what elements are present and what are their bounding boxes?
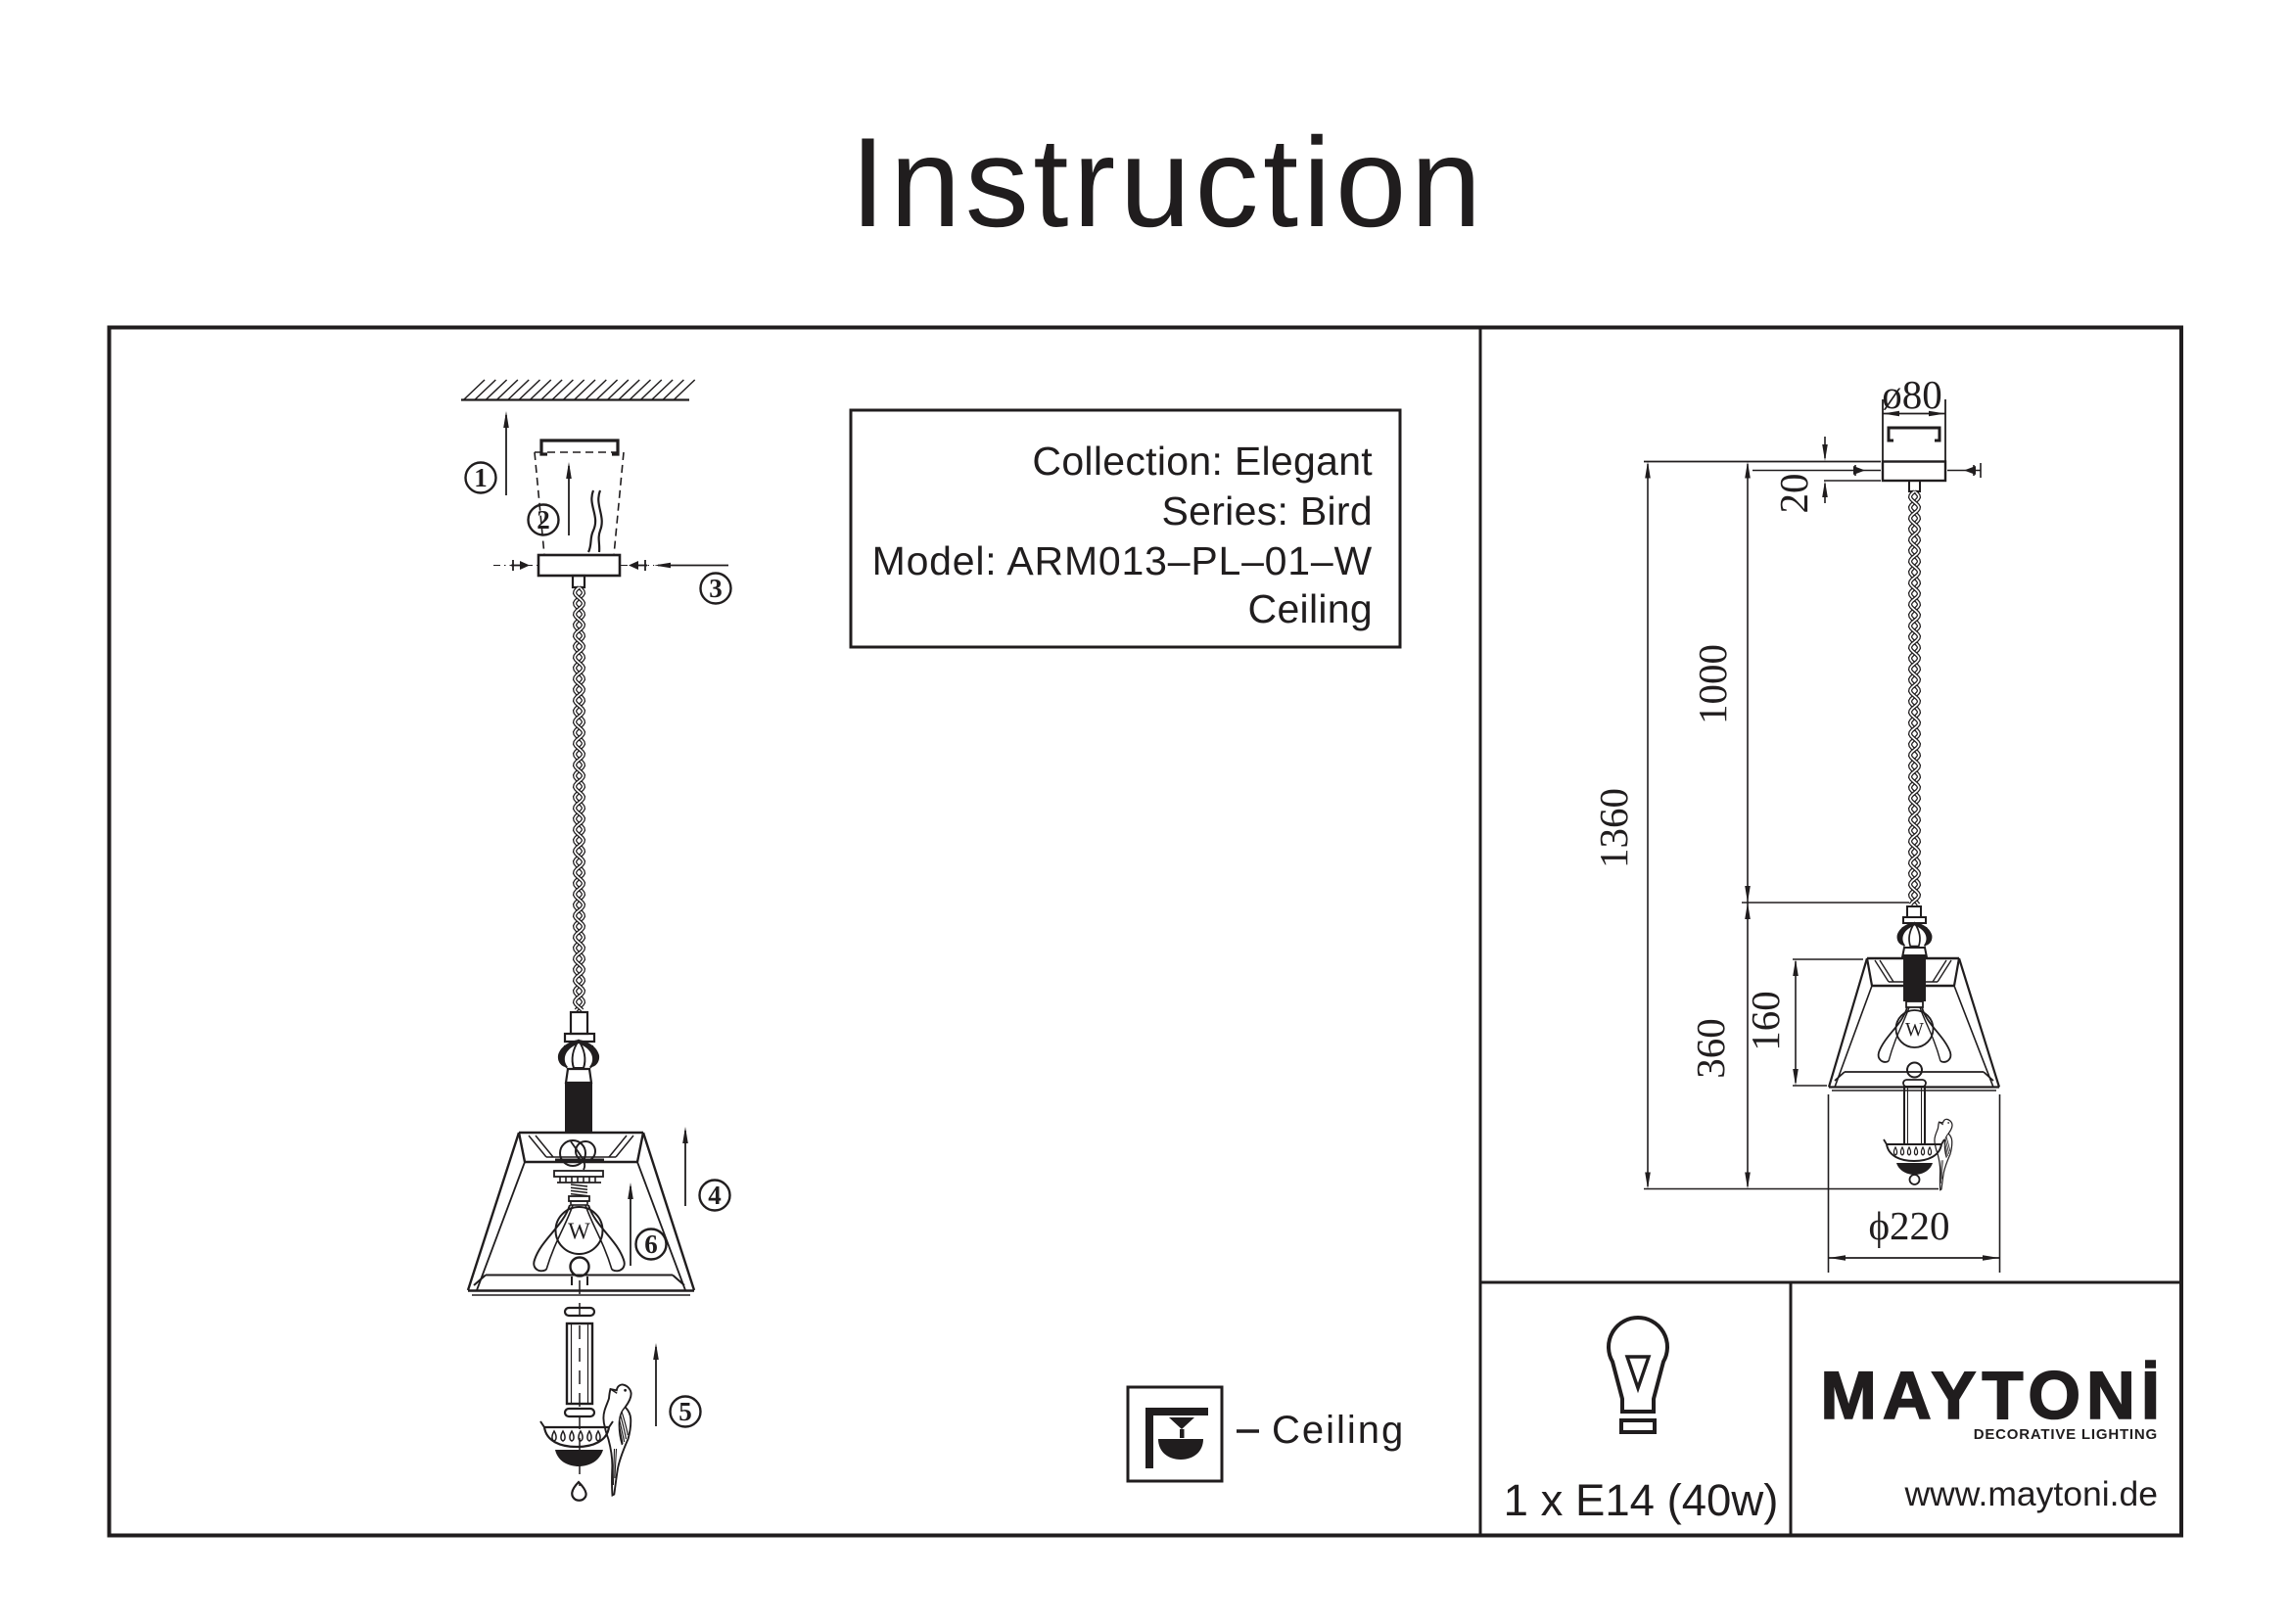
svg-text:1 x E14 (40w): 1 x E14 (40w) [1504, 1475, 1779, 1525]
svg-text:www.maytoni.de: www.maytoni.de [1904, 1474, 2158, 1513]
svg-text:W: W [568, 1220, 590, 1245]
svg-text:Ceiling: Ceiling [1272, 1409, 1405, 1452]
svg-text:5: 5 [678, 1397, 692, 1426]
svg-text:4: 4 [708, 1181, 722, 1210]
svg-text:Ceiling: Ceiling [1248, 586, 1373, 631]
svg-text:360: 360 [1688, 1018, 1733, 1079]
svg-text:DECORATIVE LIGHTING: DECORATIVE LIGHTING [1974, 1426, 2158, 1443]
svg-text:1: 1 [474, 463, 488, 492]
svg-text:3: 3 [709, 574, 723, 603]
svg-text:20: 20 [1771, 474, 1816, 514]
svg-text:160: 160 [1743, 991, 1788, 1051]
svg-text:Model: ARM013–PL–01–W: Model: ARM013–PL–01–W [872, 538, 1373, 583]
svg-text:1000: 1000 [1690, 644, 1735, 724]
svg-text:Instruction: Instruction [850, 111, 1485, 254]
svg-text:W: W [1905, 1019, 1924, 1041]
svg-text:Collection: Elegant: Collection: Elegant [1032, 439, 1373, 484]
svg-text:ϕ220: ϕ220 [1868, 1203, 1949, 1248]
svg-text:Series: Bird: Series: Bird [1161, 488, 1373, 534]
svg-text:MAYTONİ: MAYTONİ [1820, 1358, 2166, 1433]
svg-text:1360: 1360 [1591, 788, 1636, 868]
svg-text:6: 6 [644, 1230, 658, 1259]
svg-text:2: 2 [537, 505, 550, 534]
svg-text:ø80: ø80 [1882, 372, 1942, 417]
